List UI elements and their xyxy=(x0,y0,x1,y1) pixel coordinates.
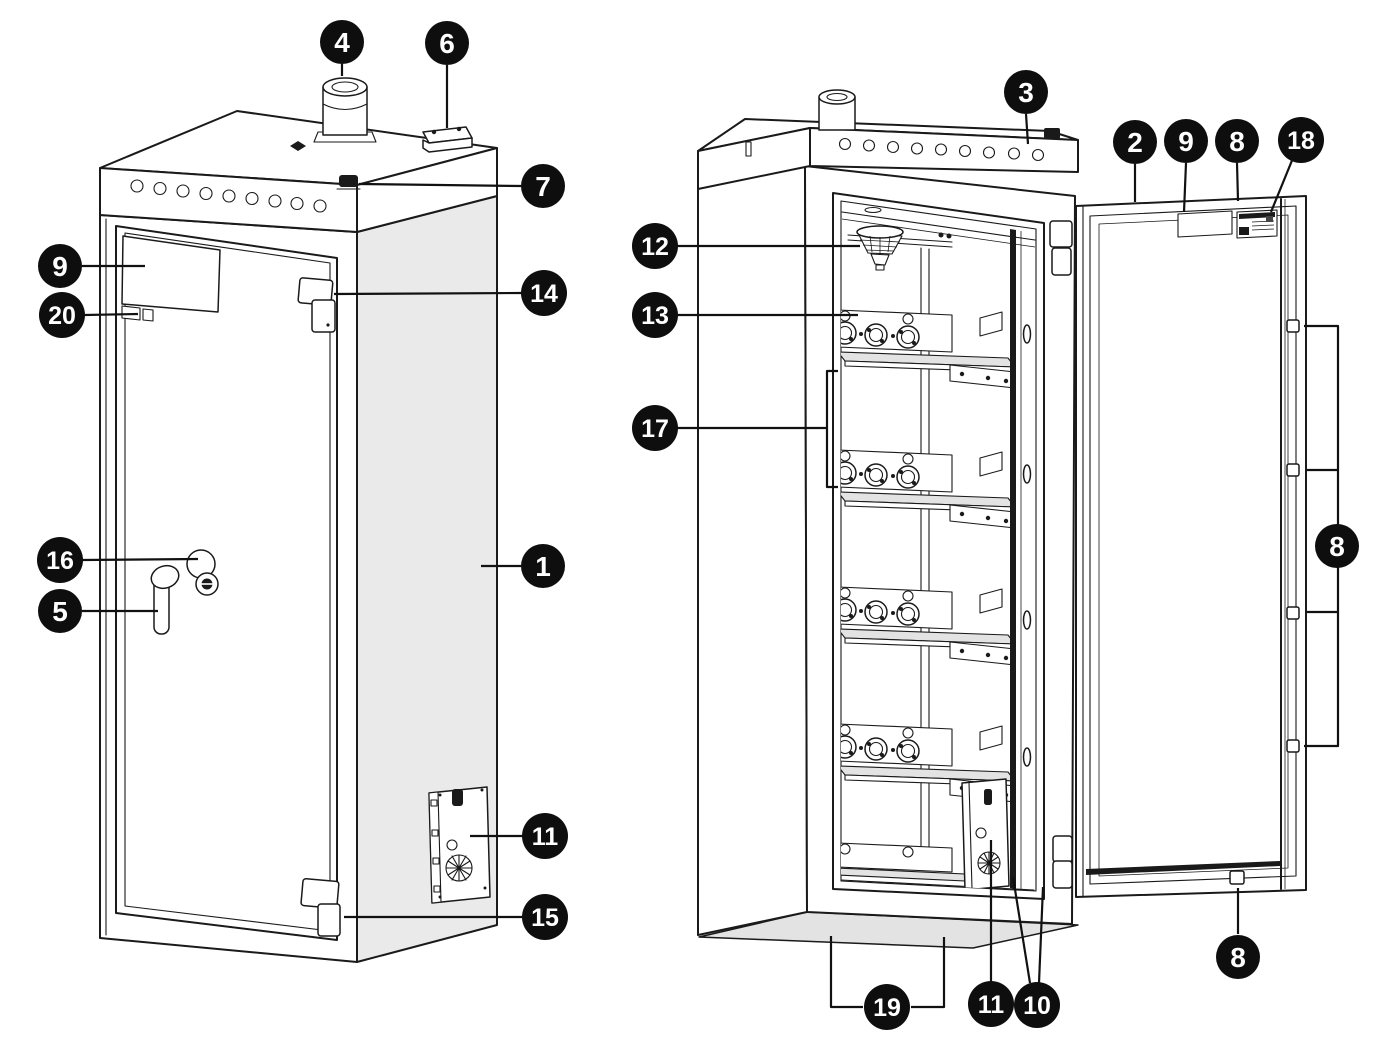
open-cabinet-side-face xyxy=(698,166,807,935)
callout-number: 12 xyxy=(641,233,669,261)
callout-number: 7 xyxy=(535,171,551,202)
callout-1: 1 xyxy=(521,544,565,588)
door-document-pocket xyxy=(122,236,220,312)
callout-number: 8 xyxy=(1229,126,1245,157)
callout-number: 3 xyxy=(1018,77,1034,108)
callout-number: 6 xyxy=(439,28,455,59)
module-terminals xyxy=(834,462,919,488)
callout-11-side: 11 xyxy=(522,813,568,859)
cabinet-parts-diagram: 467920141651111532981812131788191110 xyxy=(0,0,1393,1041)
callout-20: 20 xyxy=(39,292,85,338)
roof-tab xyxy=(746,142,751,156)
callout-7: 7 xyxy=(521,164,565,208)
callout-12: 12 xyxy=(632,223,678,269)
module-terminals xyxy=(834,322,919,348)
fan-grille xyxy=(446,855,472,881)
open-door-lower-hinge xyxy=(1053,836,1072,888)
callout-19-leader xyxy=(831,936,863,1007)
door-bottom-bolt xyxy=(1230,871,1244,884)
callout-16: 16 xyxy=(37,537,83,583)
roof-vent-cylinder xyxy=(819,90,855,130)
barcode xyxy=(1239,227,1249,235)
callout-number: 14 xyxy=(530,280,558,308)
callout-number: 19 xyxy=(873,994,901,1022)
module-terminals xyxy=(834,736,919,762)
callout-number: 11 xyxy=(978,991,1005,1019)
callout-10: 10 xyxy=(1014,982,1060,1028)
roof-cap xyxy=(100,78,497,232)
callout-3: 3 xyxy=(1004,70,1048,114)
side-mounted-unit xyxy=(429,787,490,903)
callout-15: 15 xyxy=(522,894,568,940)
callout-number: 16 xyxy=(46,547,74,575)
callout-9-door: 9 xyxy=(1164,119,1208,163)
roof-bolt xyxy=(1044,128,1060,139)
callout-number: 2 xyxy=(1127,127,1143,158)
callout-number: 20 xyxy=(48,302,76,330)
callout-number: 5 xyxy=(52,596,68,627)
roof-box xyxy=(423,127,472,152)
qr-mark xyxy=(1266,216,1273,222)
callout-number: 9 xyxy=(52,251,68,282)
callout-number: 4 xyxy=(334,27,350,58)
callout-13: 13 xyxy=(632,292,678,338)
callout-14-leader xyxy=(334,293,522,294)
internal-unit xyxy=(962,779,1009,890)
callout-2: 2 xyxy=(1113,120,1157,164)
cabinet-door-closed xyxy=(116,226,340,940)
callout-19: 19 xyxy=(864,984,910,1030)
battery-module xyxy=(834,450,952,492)
module-terminals xyxy=(834,599,919,625)
callout-11-internal: 11 xyxy=(968,981,1014,1027)
callout-number: 8 xyxy=(1230,942,1246,973)
battery-module xyxy=(834,587,952,629)
callout-8-top-leader xyxy=(1237,163,1238,201)
battery-module xyxy=(838,843,952,872)
roof-vent-cylinder xyxy=(314,78,376,142)
diagram-canvas: 467920141651111532981812131788191110 xyxy=(0,0,1393,1041)
callout-8-top: 8 xyxy=(1215,119,1259,163)
callout-number: 8 xyxy=(1329,531,1345,562)
callout-number: 10 xyxy=(1023,992,1051,1020)
callout-18: 18 xyxy=(1278,117,1324,163)
callout-9: 9 xyxy=(38,244,82,288)
battery-module xyxy=(834,310,952,352)
callout-16-leader xyxy=(82,559,198,560)
callout-17: 17 xyxy=(632,405,678,451)
door-label xyxy=(1178,211,1232,237)
callout-19-leader xyxy=(911,937,944,1007)
callout-number: 1 xyxy=(535,551,551,582)
callout-number: 17 xyxy=(641,415,669,443)
battery-module xyxy=(834,724,952,766)
callout-4: 4 xyxy=(320,20,364,64)
door-outer-edge xyxy=(116,226,337,940)
callout-number: 18 xyxy=(1287,127,1315,155)
callout-14: 14 xyxy=(521,270,567,316)
door-frame-seal xyxy=(1010,229,1016,889)
callout-6: 6 xyxy=(425,21,469,65)
callout-5: 5 xyxy=(38,589,82,633)
closed-cabinet-view xyxy=(100,78,497,962)
rating-label xyxy=(1237,210,1277,238)
open-cabinet-view xyxy=(698,90,1306,948)
callout-number: 9 xyxy=(1178,126,1194,157)
callout-number: 15 xyxy=(531,904,559,932)
callout-8-bottom: 8 xyxy=(1216,935,1260,979)
door-outer-edge xyxy=(1076,196,1306,897)
callout-20-leader xyxy=(85,314,138,315)
fan-grille xyxy=(978,852,1000,874)
open-door-upper-hinge xyxy=(1050,221,1072,275)
callout-number: 13 xyxy=(641,302,669,330)
callout-number: 11 xyxy=(532,823,559,851)
callout-8-bolts: 8 xyxy=(1315,524,1359,568)
cabinet-door-open xyxy=(1076,196,1306,897)
